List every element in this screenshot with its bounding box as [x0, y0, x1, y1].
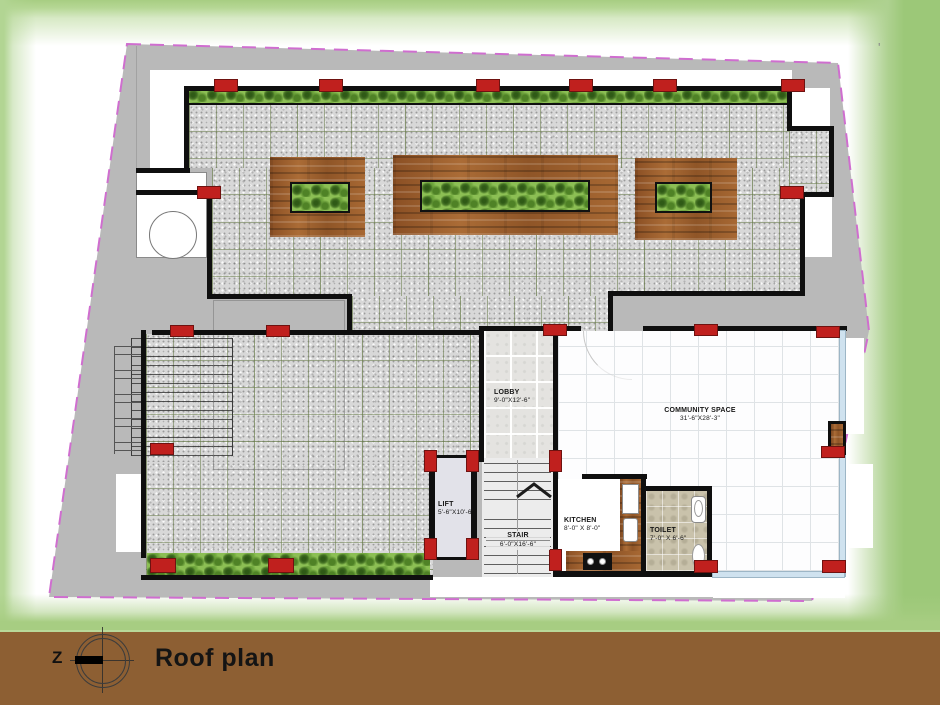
column-marker [268, 558, 294, 573]
north-letter: Z [52, 648, 62, 668]
kitchen-sink [623, 518, 638, 542]
wall-segment [800, 192, 805, 296]
column-marker [549, 450, 562, 472]
setback-patch [792, 88, 830, 128]
setback-patch [849, 464, 873, 548]
column-marker [170, 325, 194, 337]
room-dims: 8'-0" X 8'-0" [564, 525, 600, 533]
fridge [622, 484, 639, 514]
column-marker [569, 79, 593, 92]
setback-patch [150, 70, 186, 172]
wall-segment [553, 330, 558, 462]
burner [587, 558, 594, 565]
wall-segment [141, 330, 146, 558]
wall-segment [553, 571, 712, 577]
toilet-label: TOILET 7'-0" X 6'-6" [650, 526, 686, 544]
community-label: COMMUNITY SPACE 31'-6"X28'-3" [635, 406, 765, 424]
room-dims: 5'-6"X10'-6" [438, 509, 474, 517]
burner [599, 558, 606, 565]
planter-green-box [420, 180, 590, 212]
washbasin-bowl [694, 500, 703, 517]
wall-segment [184, 103, 792, 105]
setback-patch [804, 197, 832, 257]
wall-segment [347, 294, 352, 334]
setback-patch [846, 338, 864, 434]
column-marker [424, 538, 437, 560]
column-marker [694, 560, 718, 573]
lift-label: LIFT 5'-6"X10'-6" [438, 500, 474, 518]
planter-green-box [290, 182, 350, 213]
title-bar [0, 630, 940, 705]
wall-segment [141, 575, 433, 580]
plan-title: Roof plan [155, 644, 275, 673]
wall-segment [184, 86, 189, 172]
column-marker [197, 186, 221, 199]
room-name: STAIR [486, 531, 550, 540]
wall-segment [207, 294, 352, 299]
roof-plan-sheet: LOBBY 9'-0"X12'-6" COMMUNITY SPACE 31'-6… [0, 0, 940, 705]
room-dims: 6'-0"X16'-6" [486, 540, 550, 549]
column-marker [543, 324, 567, 336]
wall-segment [152, 330, 482, 335]
wall-segment [582, 474, 647, 479]
wall-segment [800, 192, 834, 197]
column-marker [424, 450, 437, 472]
column-marker [150, 443, 174, 455]
column-marker [821, 446, 845, 458]
column-marker [150, 558, 176, 573]
setback-line [136, 46, 137, 172]
wall-segment [479, 330, 484, 462]
kitchen-label: KITCHEN 8'-0" X 8'-0" [564, 516, 600, 534]
column-marker [319, 79, 343, 92]
wall-segment [136, 168, 190, 173]
room-dims: 7'-0" X 6'-6" [650, 535, 686, 543]
setback-patch [430, 577, 715, 597]
column-marker [694, 324, 718, 336]
stair-direction-arrow [514, 481, 554, 499]
wall-segment [641, 486, 712, 491]
column-marker [653, 79, 677, 92]
setback-patch [713, 578, 845, 598]
tank-circle [149, 211, 197, 259]
setback-patch [116, 474, 144, 552]
north-arrow-bar [75, 656, 103, 664]
wall-segment [608, 291, 613, 334]
column-marker [476, 79, 500, 92]
stair-divider [517, 460, 518, 574]
room-name: LIFT [438, 500, 474, 509]
room-name: KITCHEN [564, 516, 600, 525]
column-marker [214, 79, 238, 92]
room-name: TOILET [650, 526, 686, 535]
wall-segment [787, 126, 834, 131]
column-marker [466, 450, 479, 472]
room-name: LOBBY [494, 388, 530, 397]
lobby-label: LOBBY 9'-0"X12'-6" [494, 388, 530, 406]
stair-label: STAIR 6'-0"X16'-6" [486, 531, 550, 550]
wall-segment [207, 193, 212, 298]
column-marker [822, 560, 846, 573]
column-marker [266, 325, 290, 337]
room-dims: 31'-6"X28'-3" [635, 415, 765, 423]
wall-segment [829, 126, 834, 197]
column-marker [781, 79, 805, 92]
column-marker [466, 538, 479, 560]
wall-segment [608, 291, 805, 296]
column-marker [816, 326, 840, 338]
room-name: COMMUNITY SPACE [635, 406, 765, 415]
wall-segment [787, 86, 792, 130]
room-dims: 9'-0"X12'-6" [494, 397, 530, 405]
column-marker [780, 186, 804, 199]
stray-mark: ' [878, 40, 880, 55]
column-marker [549, 549, 562, 571]
planter-green-box [655, 182, 712, 213]
external-stair-ledges [114, 346, 144, 454]
